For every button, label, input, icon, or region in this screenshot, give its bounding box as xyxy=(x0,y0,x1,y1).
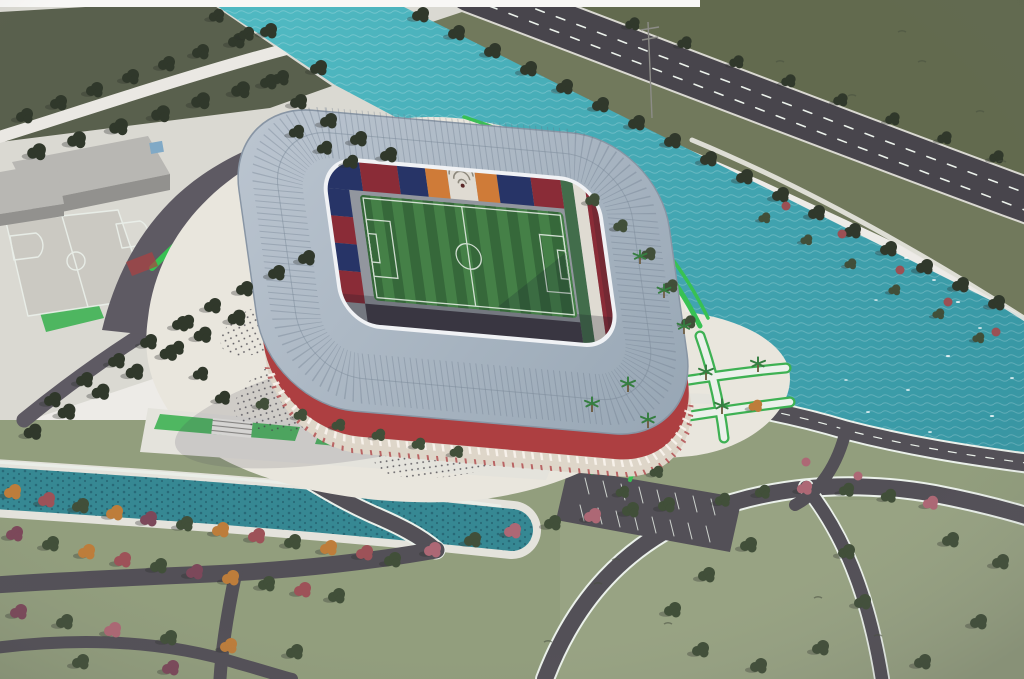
rendering-photo xyxy=(0,0,1024,679)
photo-vignette xyxy=(0,0,1024,679)
stadium-aerial-rendering xyxy=(0,0,1024,679)
